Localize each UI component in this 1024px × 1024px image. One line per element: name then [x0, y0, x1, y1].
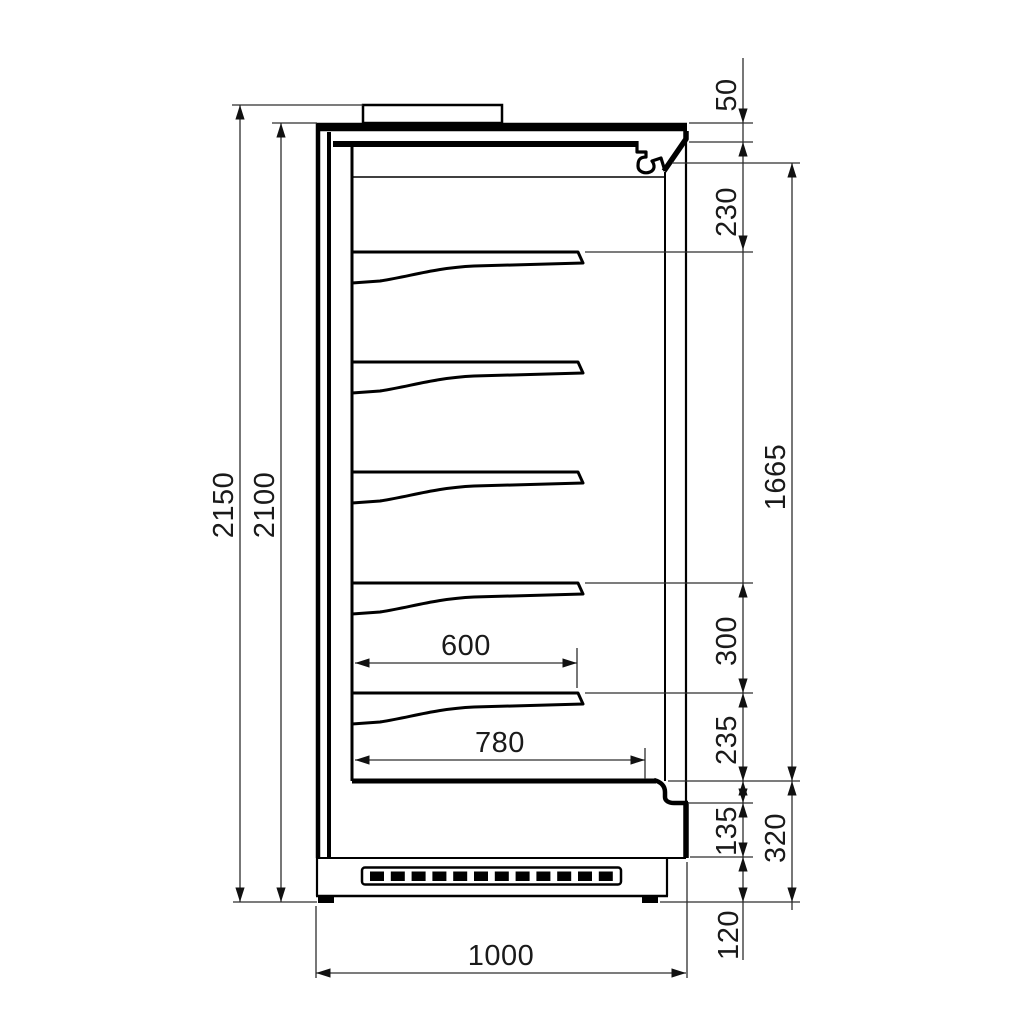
top-cap — [363, 105, 502, 123]
feet-and-grille-segments — [318, 872, 658, 904]
shelf-1 — [352, 252, 583, 283]
dim-label-base-section-height: 320 — [760, 813, 792, 863]
technical-drawing-page: 2150 2100 50 230 1665 300 235 135 320 12… — [0, 0, 1024, 1024]
dim-label-overall-depth: 1000 — [468, 940, 535, 972]
deck-step — [654, 780, 688, 803]
dim-label-display-opening: 1665 — [760, 444, 792, 511]
dim-label-deck-depth: 780 — [475, 727, 525, 759]
dim-label-front-panel-height: 135 — [711, 806, 743, 856]
cabinet-section-drawing: 2150 2100 50 230 1665 300 235 135 320 12… — [0, 0, 1024, 1024]
dimension-labels: 2150 2100 50 230 1665 300 235 135 320 12… — [208, 78, 792, 972]
dim-label-overall-height: 2150 — [208, 472, 240, 539]
dim-label-plinth-height: 120 — [713, 910, 745, 960]
dim-label-shelf-depth: 600 — [441, 630, 491, 662]
shelf-4 — [352, 583, 583, 614]
dim-label-canopy-to-top-shelf: 230 — [711, 187, 743, 237]
dim-label-shelf-spacing: 300 — [711, 616, 743, 666]
dim-label-bottom-shelf-to-deck: 235 — [711, 715, 743, 765]
shelf-3 — [352, 472, 583, 503]
left-foot — [318, 896, 334, 903]
right-foot — [642, 896, 658, 903]
canopy-drip-detail — [637, 141, 665, 173]
shelf-5 — [352, 693, 583, 724]
shelf-2 — [352, 362, 583, 393]
dim-label-top-gap: 50 — [711, 78, 743, 111]
dim-label-body-height: 2100 — [249, 472, 281, 539]
